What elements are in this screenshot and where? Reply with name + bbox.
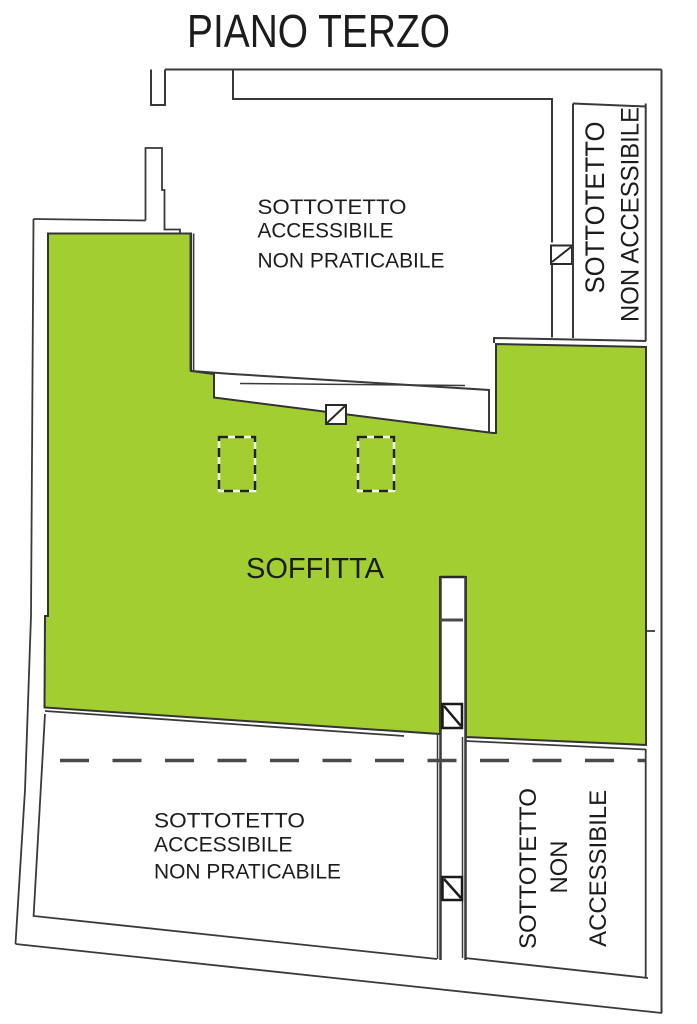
svg-text:SOTTOTETTO: SOTTOTETTO (580, 122, 610, 294)
svg-text:PIANO TERZO: PIANO TERZO (187, 5, 450, 57)
svg-text:ACCESSIBILE: ACCESSIBILE (258, 219, 394, 243)
svg-text:NON PRATICABILE: NON PRATICABILE (258, 249, 445, 273)
svg-text:SOTTOTETTO: SOTTOTETTO (154, 809, 305, 833)
svg-text:NON ACCESSIBILE: NON ACCESSIBILE (617, 107, 645, 322)
svg-text:NON PRATICABILE: NON PRATICABILE (154, 860, 341, 884)
svg-text:ACCESSIBILE: ACCESSIBILE (585, 790, 612, 947)
svg-text:SOTTOTETTO: SOTTOTETTO (258, 195, 407, 219)
svg-text:ACCESSIBILE: ACCESSIBILE (154, 833, 293, 857)
svg-text:NON: NON (546, 841, 573, 894)
svg-text:SOFFITTA: SOFFITTA (246, 553, 385, 585)
svg-text:SOTTOTETTO: SOTTOTETTO (515, 788, 542, 949)
